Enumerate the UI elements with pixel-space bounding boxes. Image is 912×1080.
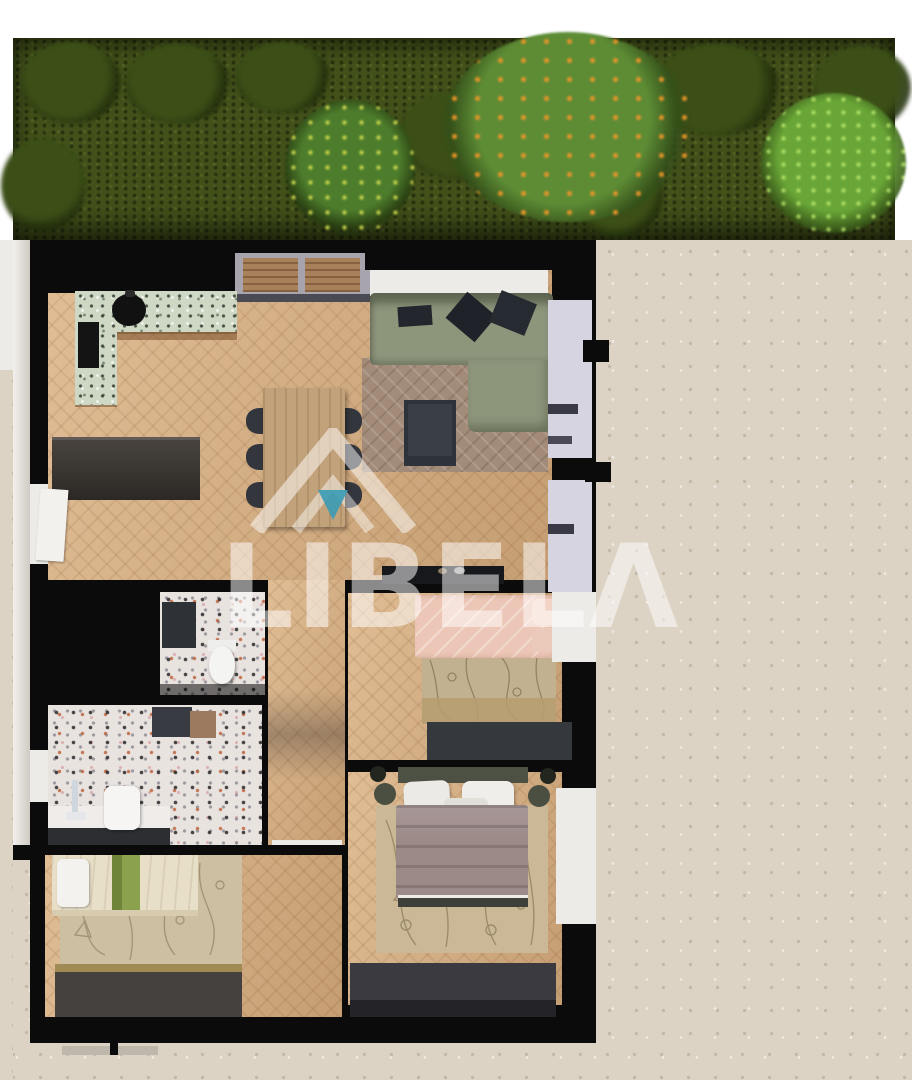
orange-fruit-tree [443, 32, 693, 222]
bedroom-master-wardrobe [350, 963, 556, 1003]
garden-lawn [13, 38, 895, 245]
neighbor-wall-edge [0, 240, 13, 370]
sofa-pillow [397, 305, 432, 327]
floorplan-render: LIBELΛ [0, 0, 912, 1080]
wall-south [30, 1017, 596, 1043]
bush [21, 42, 121, 124]
concrete-ground-left-lower [13, 860, 30, 1043]
bed-child-pillow [57, 859, 89, 907]
window-frame-mark [548, 436, 572, 444]
bed-child-green-stripe [112, 855, 140, 913]
kitchen-sink [112, 294, 146, 326]
bedroom-child-dresser [55, 964, 242, 1018]
bath-sink [104, 786, 140, 830]
bedroom-guest-rug-band [422, 698, 556, 724]
concrete-ground-right [596, 240, 912, 1080]
sofa-chaise [468, 360, 553, 432]
console-decor [438, 568, 447, 574]
dining-table [263, 388, 345, 527]
bath-faucet [72, 780, 78, 816]
bath-faucet-base [66, 812, 86, 820]
front-door-leaf [36, 488, 69, 562]
toilet-bowl [209, 646, 235, 684]
open-window-sash [583, 340, 609, 362]
window-living-right [548, 300, 592, 458]
bedroom-guest-wardrobe [427, 722, 572, 764]
terrace-mat [305, 258, 360, 292]
bush [1, 138, 86, 233]
nightstand-decor [370, 766, 386, 782]
window-frame-mark [548, 524, 574, 534]
bathroom-window [30, 750, 48, 802]
bath-mat [190, 711, 216, 738]
concrete-ground-left [0, 370, 13, 1080]
open-window-sash [585, 462, 611, 482]
window-frame-mark [548, 404, 578, 414]
window-bedroom-guest [552, 592, 596, 662]
wc-vanity [162, 602, 196, 648]
nightstand [374, 783, 396, 805]
terrace-mat [243, 258, 298, 292]
nightstand-decor [540, 768, 556, 784]
nightstand [528, 785, 550, 807]
console-decor [454, 567, 465, 574]
sink-faucet [125, 290, 135, 297]
bush [235, 42, 330, 114]
tree-with-yellow-berries [285, 100, 415, 235]
wall-top-left [45, 253, 235, 293]
wall-top-right [365, 240, 596, 270]
coffee-table-top [408, 404, 452, 456]
window-living-right-2 [548, 480, 592, 592]
shower-fixture [152, 707, 192, 737]
bush [125, 44, 230, 124]
bed-master-footboard [398, 898, 528, 907]
entry-cabinet [52, 437, 200, 500]
counter-shadow [117, 332, 237, 340]
window-bedroom-master [556, 788, 596, 924]
bright-green-tree [761, 93, 906, 233]
bed-child-frame [52, 910, 198, 916]
kitchen-stove [78, 322, 99, 368]
neighbor-party-wall [13, 240, 30, 857]
wardrobe-shadow [350, 1000, 556, 1017]
hallway-shadow [268, 690, 345, 780]
bed-master-duvet [396, 805, 528, 899]
